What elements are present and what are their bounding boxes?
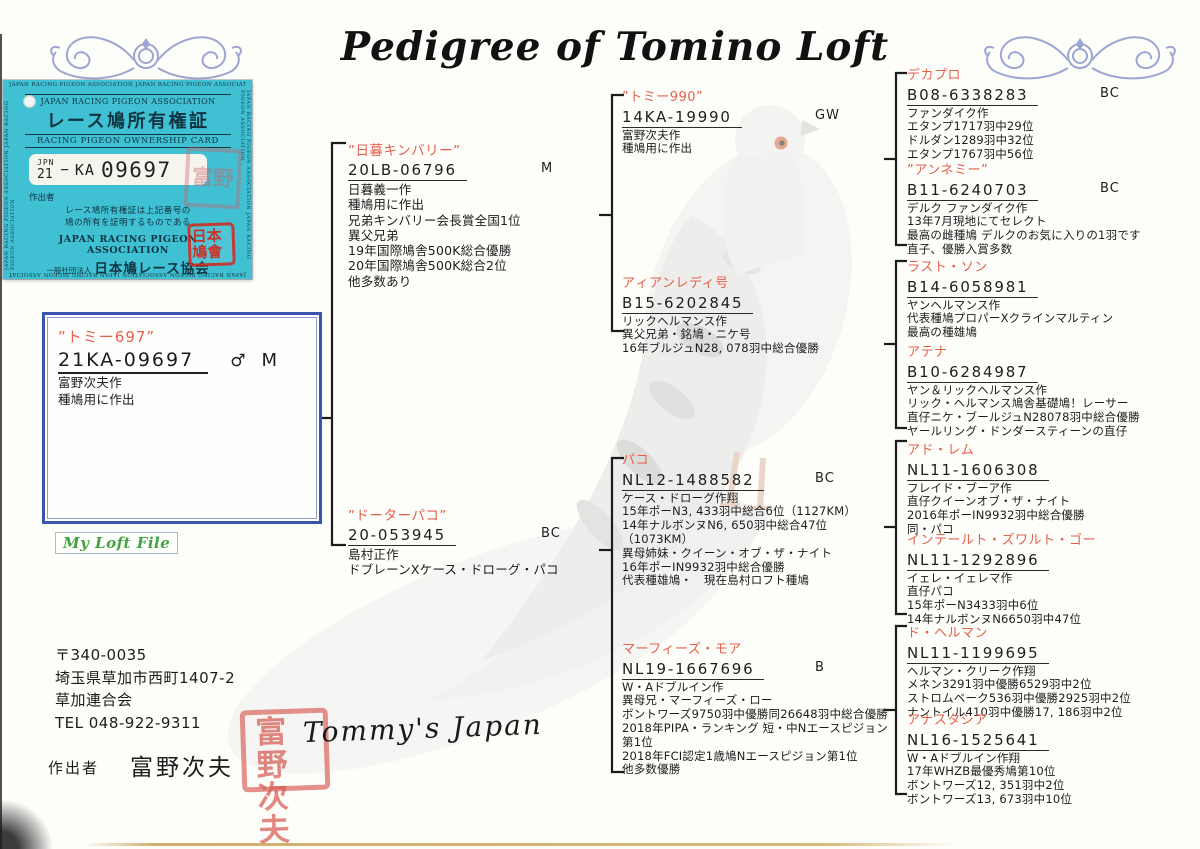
ring-number: B15-6202845 bbox=[622, 294, 753, 314]
subject-bird-box: ”トミー697” 21KA-09697 ♂ M 富野次夫作 種鳩用に作出 bbox=[42, 312, 322, 524]
bird-name: ラスト・ソン bbox=[907, 260, 1195, 276]
detail-line: 16年ブルジュN28, 078羽中総合優勝 bbox=[622, 342, 890, 356]
detail-line: 直子、優勝入賞多数 bbox=[907, 243, 1195, 257]
ring-number: 20LB-06796 bbox=[348, 161, 467, 181]
scan-corner-smudge bbox=[0, 800, 52, 849]
pedigree-node-gg1: デカプロ B08-6338283 BC ファンダイク作 エタンプ1717羽中29… bbox=[907, 68, 1195, 162]
ring-row: B11-6240703 BC bbox=[907, 180, 1195, 200]
detail-line: W・Aドブルイン作翔 bbox=[907, 752, 1195, 766]
male-symbol: ♂ bbox=[230, 351, 245, 371]
detail-line: ボントワーズ12, 351羽中2位 bbox=[907, 779, 1195, 793]
ring-number: B08-6338283 bbox=[907, 86, 1038, 106]
ring-row: NL11-1199695 bbox=[907, 643, 1195, 663]
bird-name: インテールト・ズワルト・ゴー bbox=[907, 533, 1195, 549]
ring-row: 20LB-06796 M bbox=[348, 160, 606, 180]
pedigree-sheet: Pedigree of Tomino Loft JAPAN RACING PIG… bbox=[0, 0, 1200, 849]
color-band: B bbox=[815, 660, 825, 675]
detail-line: 直仔クイーンオブ・ザ・ナイト bbox=[907, 495, 1195, 509]
card-association-name-en: JAPAN RACING PIGEON ASSOCIATION bbox=[25, 94, 231, 106]
ring-year: 21 bbox=[37, 168, 53, 181]
ring-number: 20-053945 bbox=[348, 526, 456, 546]
card-statement-line1: レース鳩所有権証は上記番号の bbox=[25, 206, 231, 218]
color-band: BC bbox=[1100, 86, 1120, 101]
subject-bird-box-inner: ”トミー697” 21KA-09697 ♂ M 富野次夫作 種鳩用に作出 bbox=[47, 317, 317, 519]
detail-line: 15年ポーN3, 433羽中総合6位（1127KM） bbox=[622, 505, 890, 519]
ring-number: B11-6240703 bbox=[907, 181, 1038, 201]
detail-line: イェレ・イェレマ作 bbox=[907, 572, 1195, 586]
color-band: BC bbox=[1100, 181, 1120, 196]
ownership-card: JAPAN RACING PIGEON ASSOCIATION JAPAN RA… bbox=[3, 80, 252, 279]
detail-line: 他多数優勝 bbox=[622, 763, 890, 777]
postal-code: 〒340-0035 bbox=[55, 644, 235, 667]
subject-name: ”トミー697” bbox=[58, 326, 306, 347]
detail-line: ボントワーズ9750羽中優勝同26648羽中総合優勝 bbox=[622, 708, 890, 722]
detail-line: リック・ヘルマンス鳩舎基礎鳩！レーサー bbox=[907, 397, 1195, 411]
bird-name: ”ドーターパコ” bbox=[348, 508, 606, 524]
pedigree-node-sire: ”日暮キンバリー” 20LB-06796 M 日暮義一作 種鳩用に作出 兄弟キン… bbox=[348, 143, 606, 289]
detail-line: 日暮義一作 bbox=[348, 182, 606, 197]
detail-line: 2018年PIPA・ランキング 短・中Nエースピジョン第1位 bbox=[622, 722, 890, 750]
ring-number: B10-6284987 bbox=[907, 363, 1038, 383]
ring-number: 09697 bbox=[101, 158, 172, 182]
ring-area: KA bbox=[75, 161, 95, 179]
detail-line: 20年国際鳩舎500K総合2位 bbox=[348, 258, 606, 273]
detail-line: ボントワーズ13, 673羽中10位 bbox=[907, 793, 1195, 807]
detail-line: 19年国際鳩舎500K総合優勝 bbox=[348, 243, 606, 258]
ring-number: NL19-1667696 bbox=[622, 660, 764, 680]
subject-purpose-line: 種鳩用に作出 bbox=[58, 392, 306, 408]
pedigree-node-dam-dam: マーフィーズ・モア NL19-1667696 B W・Aドブルイン作 異母兄・マ… bbox=[622, 642, 890, 777]
detail-line: ケース・ドローグ作翔 bbox=[622, 492, 890, 506]
detail-line: ドルダン1289羽中32位 bbox=[907, 134, 1195, 148]
address-line: 埼玉県草加市西町1407-2 bbox=[55, 667, 235, 690]
detail-line: 最高の種雄鳩 bbox=[907, 326, 1195, 340]
ring-row: NL11-1292896 bbox=[907, 550, 1195, 570]
bird-name: デカプロ bbox=[907, 68, 1195, 84]
detail-line: 代表種鳩プロパーXクラインマルティン bbox=[907, 312, 1195, 326]
detail-line: 14年ナルボンヌN6, 650羽中総合47位（1073KM） bbox=[622, 519, 890, 547]
detail-line: ドブレーンXケース・ドローグ・パコ bbox=[348, 562, 606, 577]
detail-line: フレイド・ブーア作 bbox=[907, 482, 1195, 496]
detail-line: 島村正作 bbox=[348, 547, 606, 562]
color-band: GW bbox=[815, 108, 840, 123]
bird-name: パコ bbox=[622, 453, 890, 469]
ring-row: NL12-1488582 BC bbox=[622, 470, 890, 490]
detail-line: ヘルマン・クリーク作翔 bbox=[907, 665, 1195, 679]
bird-name: アィアンレディ号 bbox=[622, 276, 890, 292]
detail-line: リックヘルマンス作 bbox=[622, 315, 890, 329]
ring-country: JPN bbox=[37, 159, 54, 167]
detail-line: メネン3291羽中優勝6529羽中2位 bbox=[907, 678, 1195, 692]
bird-name: ”日暮キンバリー” bbox=[348, 143, 606, 159]
detail-line: 代表種雄鳩・ 現在島村ロフト種鳩 bbox=[622, 574, 890, 588]
breeder-name: 富野次夫 bbox=[130, 748, 234, 782]
bird-name: アナスタシア bbox=[907, 713, 1195, 729]
detail-line: 2018年FCI認定1歳鳩Nエースピジョン第1位 bbox=[622, 750, 890, 764]
color-band: M bbox=[541, 161, 553, 176]
pedigree-node-gg2: ”アンネミー” B11-6240703 BC デルク ファンダイク作 13年7月… bbox=[907, 163, 1195, 257]
subject-color-band: M bbox=[261, 350, 277, 371]
breeder-label: 作出者 bbox=[48, 757, 99, 778]
detail-line: W・Aドブルイン作 bbox=[622, 681, 890, 695]
bird-name: ”トミー990” bbox=[622, 90, 890, 106]
detail-line: エタンプ1717羽中29位 bbox=[907, 120, 1195, 134]
detail-line: 兄弟キンバリー会長賞全国1位 bbox=[348, 213, 606, 228]
detail-line: 15年ポーN3433羽中6位 bbox=[907, 599, 1195, 613]
pedigree-node-dam-sire: パコ NL12-1488582 BC ケース・ドローグ作翔 15年ポーN3, 4… bbox=[622, 453, 890, 588]
pedigree-node-gg5: アド・レム NL11-1606308 フレイド・ブーア作 直仔クイーンオブ・ザ・… bbox=[907, 443, 1195, 537]
card-title-jp: レース鳩所有権証 bbox=[25, 107, 231, 133]
ring-row: B15-6202845 bbox=[622, 293, 890, 313]
detail-line: 14年ナルボンヌN6650羽中47位 bbox=[907, 613, 1195, 627]
bird-name: ド・ヘルマン bbox=[907, 626, 1195, 642]
faint-owner-seal: 富野 bbox=[183, 147, 242, 210]
ring-number: 14KA-19990 bbox=[622, 108, 742, 128]
card-title-en: RACING PIGEON OWNERSHIP CARD bbox=[25, 134, 231, 148]
card-ring-number-band: JPN 21 − KA 09697 bbox=[29, 154, 207, 185]
ring-dash: − bbox=[60, 162, 68, 178]
ring-row: 20-053945 BC bbox=[348, 525, 606, 545]
loft-signature: Tommy's Japan bbox=[302, 708, 543, 749]
detail-line: ヤン＆リックヘルマンス作 bbox=[907, 384, 1195, 398]
detail-line: 16年ポーIN9932羽中総合優勝 bbox=[622, 561, 890, 575]
pedigree-node-dam: ”ドーターパコ” 20-053945 BC 島村正作 ドブレーンXケース・ドロー… bbox=[348, 508, 606, 578]
card-edge-text-left: JAPAN RACING PIGEON ASSOCIATION JAPAN RA… bbox=[4, 90, 16, 270]
ring-number: B14-6058981 bbox=[907, 278, 1038, 298]
ring-country-year: JPN 21 bbox=[37, 159, 54, 181]
pedigree-node-sire-dam: アィアンレディ号 B15-6202845 リックヘルマンス作 異父兄弟・銘鳩・ニ… bbox=[622, 276, 890, 356]
detail-line: エタンプ1767羽中56位 bbox=[907, 148, 1195, 162]
detail-line: 富野次夫作 bbox=[622, 129, 890, 143]
detail-line: 2016年ポーIN9932羽中総合優勝 bbox=[907, 509, 1195, 523]
bird-name: アド・レム bbox=[907, 443, 1195, 459]
ring-row: NL16-1525641 bbox=[907, 730, 1195, 750]
detail-line: ヤールリング・ドンダースティーンの直仔 bbox=[907, 425, 1195, 439]
ring-row: B14-6058981 bbox=[907, 277, 1195, 297]
color-band: BC bbox=[541, 526, 561, 541]
ring-number: NL11-1606308 bbox=[907, 461, 1049, 481]
telephone: TEL 048-922-9311 bbox=[55, 712, 235, 735]
detail-line: 異母兄・マーフィーズ・ロー bbox=[622, 694, 890, 708]
bird-name: アテナ bbox=[907, 345, 1195, 361]
detail-line: 異母姉妹・クイーン・オブ・ザ・ナイト bbox=[622, 547, 890, 561]
detail-line: ヤンヘルマンス作 bbox=[907, 299, 1195, 313]
detail-line: 直仔ニケ・ブールジュN28078羽中総合優勝 bbox=[907, 411, 1195, 425]
subject-ring-number: 21KA-09697 bbox=[58, 349, 208, 374]
detail-line: 最高の雌種鳩 デルクのお気に入りの1羽です bbox=[907, 229, 1195, 243]
detail-line: 種鳩用に作出 bbox=[348, 197, 606, 212]
ring-row: 14KA-19990 GW bbox=[622, 107, 890, 127]
ring-row: NL19-1667696 B bbox=[622, 659, 890, 679]
detail-line: 種鳩用に作出 bbox=[622, 142, 890, 156]
detail-line: 異父兄弟 bbox=[348, 228, 606, 243]
ring-row: B08-6338283 BC bbox=[907, 85, 1195, 105]
pedigree-node-gg4: アテナ B10-6284987 ヤン＆リックヘルマンス作 リック・ヘルマンス鳩舎… bbox=[907, 345, 1195, 439]
my-loft-file-badge: My Loft File bbox=[55, 532, 178, 554]
detail-line: 17年WHZB最優秀鳩第10位 bbox=[907, 765, 1195, 779]
club-name: 草加連合会 bbox=[55, 689, 235, 712]
pedigree-node-gg8: アナスタシア NL16-1525641 W・Aドブルイン作翔 17年WHZB最優… bbox=[907, 713, 1195, 807]
color-band: BC bbox=[815, 471, 835, 486]
page-title: Pedigree of Tomino Loft bbox=[330, 24, 900, 70]
ring-number: NL16-1525641 bbox=[907, 731, 1049, 751]
ring-number: NL11-1199695 bbox=[907, 644, 1049, 664]
association-red-seal: 日本鳩會 bbox=[187, 222, 235, 267]
ring-row: NL11-1606308 bbox=[907, 460, 1195, 480]
pedigree-node-sire-sire: ”トミー990” 14KA-19990 GW 富野次夫作 種鳩用に作出 bbox=[622, 90, 890, 156]
pedigree-node-gg3: ラスト・ソン B14-6058981 ヤンヘルマンス作 代表種鳩プロパーXクライ… bbox=[907, 260, 1195, 340]
detail-line: デルク ファンダイク作 bbox=[907, 202, 1195, 216]
detail-line: 他多数あり bbox=[348, 274, 606, 289]
scan-bottom-streak bbox=[84, 843, 954, 846]
detail-line: 13年7月現地にてセレクト bbox=[907, 215, 1195, 229]
ring-number: NL12-1488582 bbox=[622, 471, 764, 491]
detail-line: 直仔パコ bbox=[907, 585, 1195, 599]
subject-ring-row: 21KA-09697 ♂ M bbox=[58, 349, 306, 374]
bird-name: マーフィーズ・モア bbox=[622, 642, 890, 658]
scan-edge-shadow bbox=[0, 34, 2, 849]
ring-number: NL11-1292896 bbox=[907, 551, 1049, 571]
pedigree-node-gg7: ド・ヘルマン NL11-1199695 ヘルマン・クリーク作翔 メネン3291羽… bbox=[907, 626, 1195, 720]
pedigree-node-gg6: インテールト・ズワルト・ゴー NL11-1292896 イェレ・イェレマ作 直仔… bbox=[907, 533, 1195, 627]
card-edge-text-top: JAPAN RACING PIGEON ASSOCIATION JAPAN RA… bbox=[9, 82, 246, 88]
card-corporate-prefix: 一般社団法人 bbox=[46, 265, 91, 276]
detail-line: ファンダイク作 bbox=[907, 107, 1195, 121]
detail-line: 異父兄弟・銘鳩・ニケ号 bbox=[622, 328, 890, 342]
subject-breeder-line: 富野次夫作 bbox=[58, 375, 306, 391]
detail-line: ストロムベーク536羽中優勝2925羽中2位 bbox=[907, 692, 1195, 706]
flourish-ornament-left bbox=[46, 26, 246, 88]
bird-name: ”アンネミー” bbox=[907, 163, 1195, 179]
ring-row: B10-6284987 bbox=[907, 362, 1195, 382]
breeder-contact-block: 〒340-0035 埼玉県草加市西町1407-2 草加連合会 TEL 048-9… bbox=[55, 644, 235, 734]
